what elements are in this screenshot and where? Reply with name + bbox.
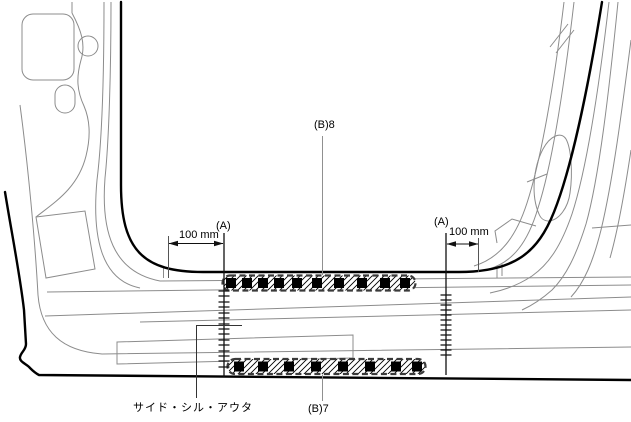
front-edge-inner-line [20, 105, 631, 354]
arrowhead-right [469, 241, 479, 246]
hinge-panel [36, 211, 95, 278]
arrowhead-right [214, 241, 224, 246]
cut-line-right [441, 233, 452, 375]
label-section-ref-right: (A) [434, 216, 449, 228]
sill-line-4 [140, 310, 631, 322]
weld-strip-top [223, 276, 416, 291]
pillar-hole-round [78, 36, 98, 56]
body-thin-lines [20, 2, 631, 364]
body-outlines [5, 2, 631, 380]
sill-line-3 [45, 297, 631, 316]
diagram-canvas: (B)8 (B)7 サイド・シル・アウタ (A) 100 mm (A) 100 … [0, 0, 631, 422]
window-cutout [22, 14, 74, 80]
label-weld-spec-top: (B)8 [314, 119, 335, 131]
technical-diagram [0, 0, 631, 422]
arrowhead-left [169, 241, 179, 246]
b-pillar-line-5 [571, 40, 631, 297]
b-pillar-line-3 [490, 2, 609, 293]
pillar-hole-oval [55, 85, 75, 113]
dimension-right [447, 238, 479, 272]
b-pillar-side-line [592, 225, 631, 228]
label-dimension-right: 100 mm [449, 226, 489, 238]
weld-strip-bottom [228, 359, 426, 374]
b-pillar-connector [527, 174, 547, 182]
label-part-name: サイド・シル・アウタ [133, 402, 253, 414]
arrowhead-left [447, 241, 457, 246]
pillar-inner-line-2 [104, 2, 160, 281]
front-pillar-s-curve [36, 13, 89, 217]
label-dimension-left: 100 mm [179, 229, 219, 241]
cut-line-left [219, 233, 230, 377]
label-weld-spec-bottom: (B)7 [308, 403, 329, 415]
